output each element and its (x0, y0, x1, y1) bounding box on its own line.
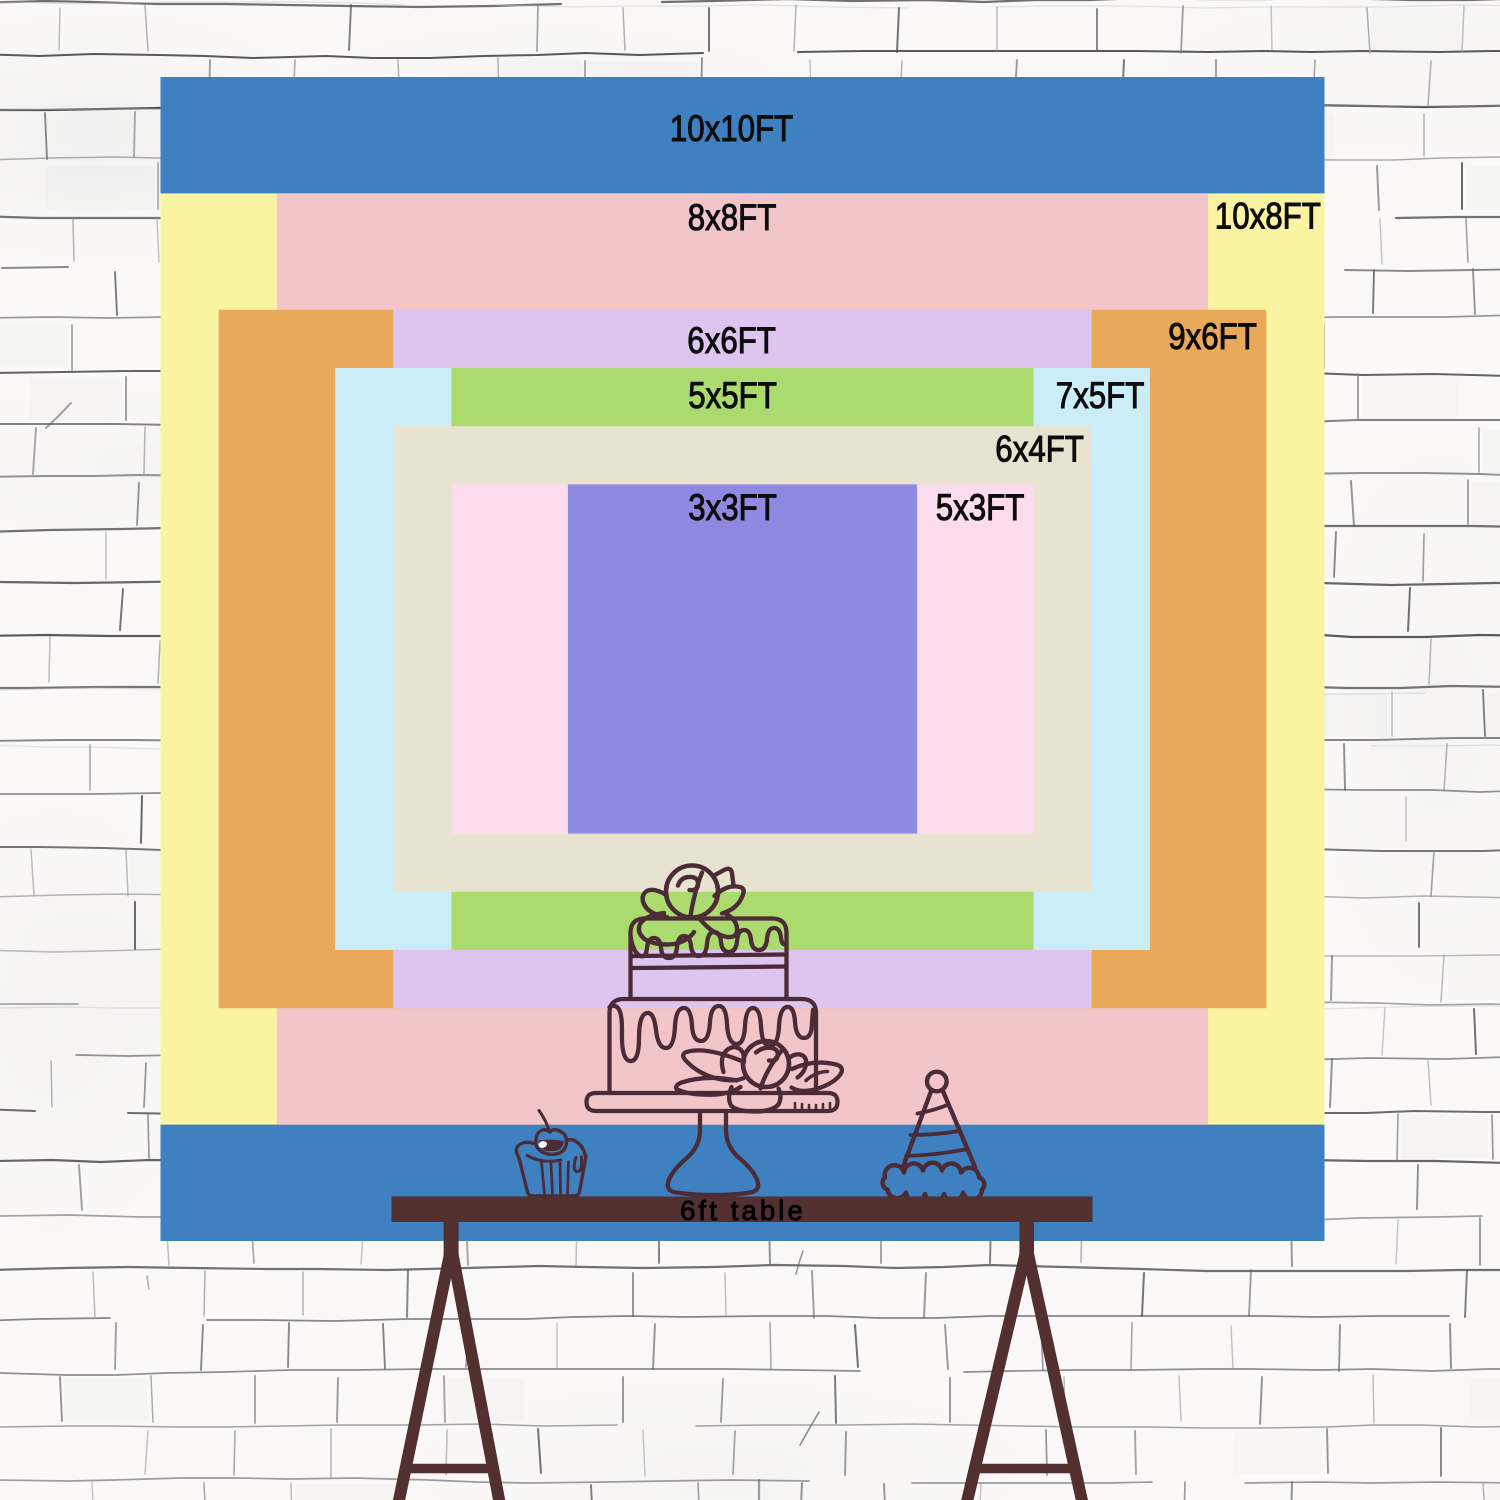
svg-text:5x3FT: 5x3FT (936, 488, 1025, 529)
svg-text:10x8FT: 10x8FT (1215, 196, 1321, 237)
svg-text:9x6FT: 9x6FT (1168, 317, 1257, 358)
svg-text:10x10FT: 10x10FT (670, 109, 793, 150)
svg-text:6x4FT: 6x4FT (995, 429, 1084, 470)
svg-text:6ft table: 6ft table (680, 1195, 806, 1226)
svg-text:5x5FT: 5x5FT (688, 376, 777, 417)
svg-text:6x6FT: 6x6FT (687, 321, 776, 362)
svg-text:7x5FT: 7x5FT (1056, 376, 1145, 417)
svg-text:8x8FT: 8x8FT (688, 198, 777, 239)
svg-text:3x3FT: 3x3FT (688, 488, 777, 529)
